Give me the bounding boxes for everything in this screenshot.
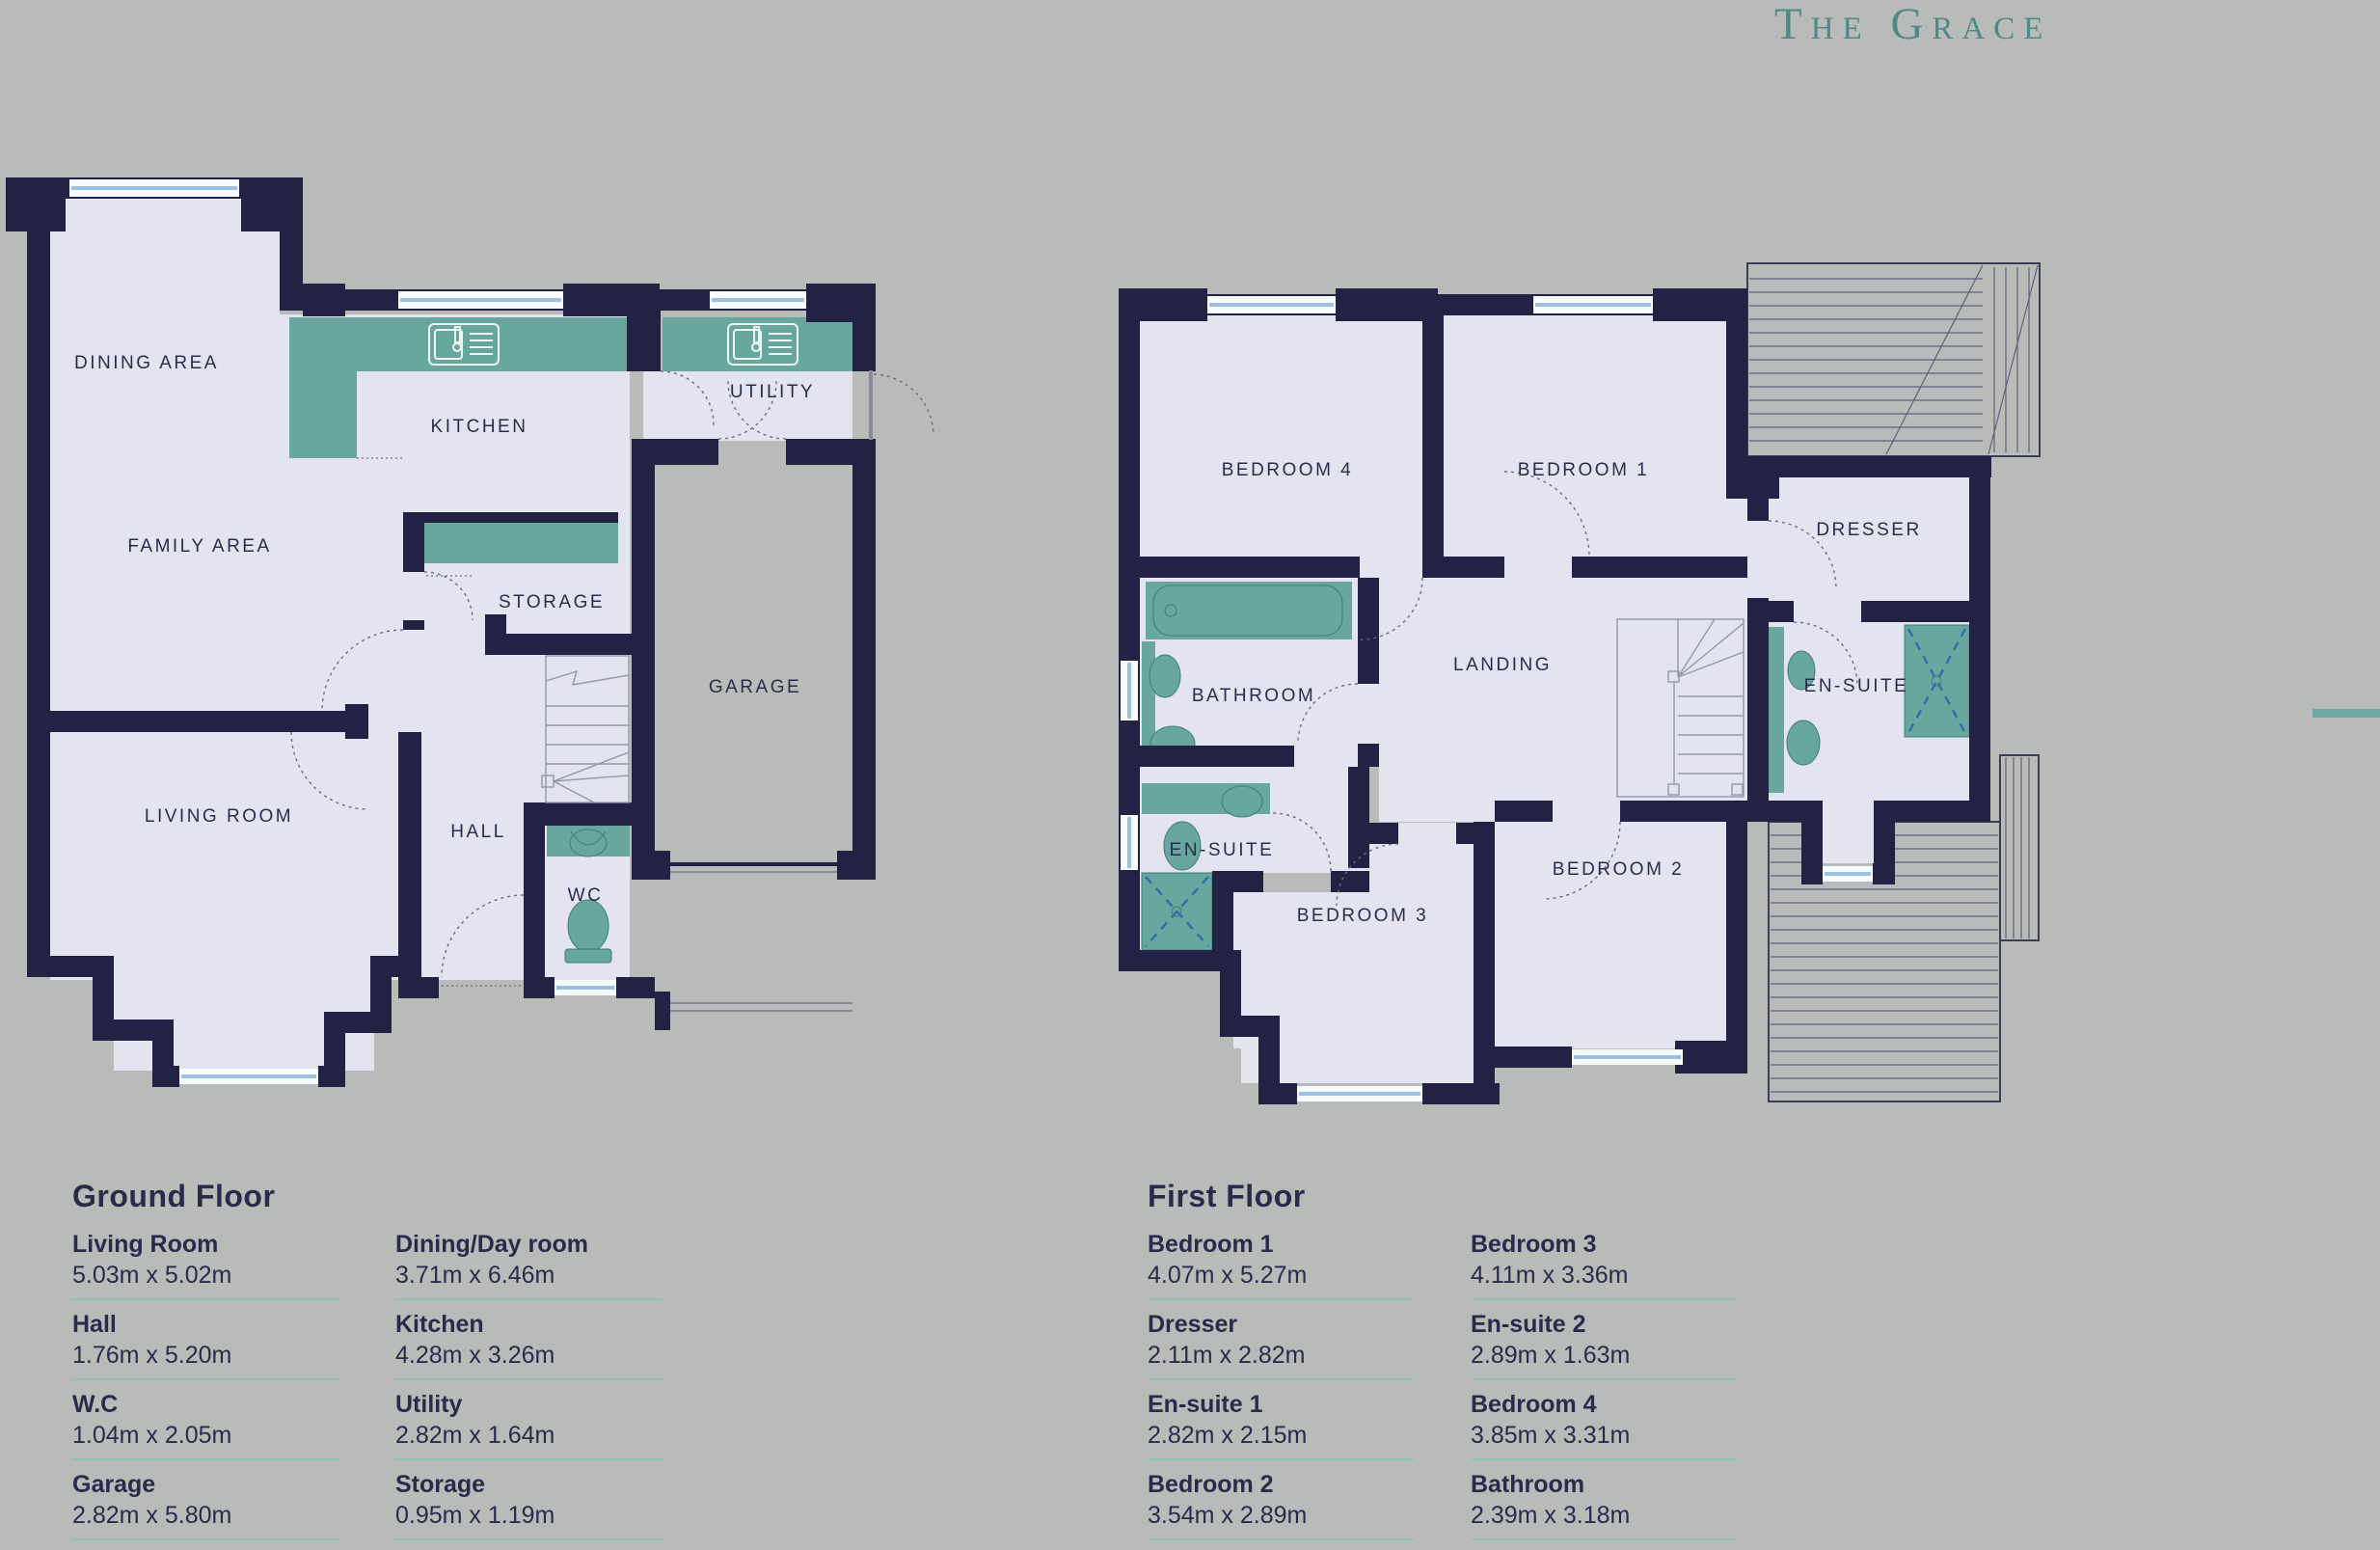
ground-floor-table: Ground Floor Living Room 5.03m x 5.02m H… (72, 1179, 767, 1550)
room-name: Utility (395, 1390, 663, 1419)
room-dims: 2.82m x 1.64m (395, 1421, 663, 1450)
room-dims: 1.04m x 2.05m (72, 1421, 339, 1450)
table-row: Storage 0.95m x 1.19m (395, 1470, 663, 1540)
first-table-col1: Bedroom 1 4.07m x 5.27m Dresser 2.11m x … (1148, 1230, 1415, 1550)
room-name: Kitchen (395, 1310, 663, 1339)
table-row: Bedroom 3 4.11m x 3.36m (1471, 1230, 1738, 1300)
table-row: Living Room 5.03m x 5.02m (72, 1230, 339, 1300)
label-bathroom: BATHROOM (1192, 686, 1315, 706)
room-dims: 2.82m x 5.80m (72, 1501, 339, 1530)
wc-basin-icon (570, 829, 607, 857)
first-table-col2: Bedroom 3 4.11m x 3.36m En-suite 2 2.89m… (1471, 1230, 1738, 1550)
page-edge-accent (2312, 709, 2380, 718)
label-bedroom-3: BEDROOM 3 (1297, 906, 1429, 926)
label-garage: GARAGE (709, 677, 801, 697)
label-kitchen: KITCHEN (431, 417, 528, 437)
room-name: Bathroom (1471, 1470, 1738, 1499)
room-dims: 2.11m x 2.82m (1148, 1341, 1415, 1370)
room-name: Bedroom 2 (1148, 1470, 1415, 1499)
room-name: Hall (72, 1310, 339, 1339)
room-name: Bedroom 3 (1471, 1230, 1738, 1259)
page-title: The Grace (1774, 0, 2051, 50)
room-dims: 3.54m x 2.89m (1148, 1501, 1415, 1530)
table-row: Garage 2.82m x 5.80m (72, 1470, 339, 1540)
room-dims: 1.76m x 5.20m (72, 1341, 339, 1370)
room-dims: 5.03m x 5.02m (72, 1261, 339, 1290)
room-name: Dresser (1148, 1310, 1415, 1339)
room-name: En-suite 2 (1471, 1310, 1738, 1339)
room-name: W.C (72, 1390, 339, 1419)
roof-hatch-top (1747, 263, 2040, 456)
table-row: En-suite 1 2.82m x 2.15m (1148, 1390, 1415, 1460)
table-row: Hall 1.76m x 5.20m (72, 1310, 339, 1380)
label-bedroom-2: BEDROOM 2 (1553, 859, 1685, 880)
first-floor-table: First Floor Bedroom 1 4.07m x 5.27m Dres… (1148, 1179, 1842, 1550)
table-row: Bedroom 2 3.54m x 2.89m (1148, 1470, 1415, 1540)
room-name: Bedroom 1 (1148, 1230, 1415, 1259)
table-row: W.C 1.04m x 2.05m (72, 1390, 339, 1460)
label-ensuite-left: EN-SUITE (1170, 840, 1275, 860)
room-name: Storage (395, 1470, 663, 1499)
table-row: Kitchen 4.28m x 3.26m (395, 1310, 663, 1380)
room-name: Living Room (72, 1230, 339, 1259)
label-utility: UTILITY (730, 382, 815, 402)
label-storage: STORAGE (499, 592, 605, 612)
room-dims: 2.39m x 3.18m (1471, 1501, 1738, 1530)
label-living-room: LIVING ROOM (145, 806, 293, 827)
ground-floor-plan: DINING AREA KITCHEN UTILITY FAMILY AREA … (0, 145, 964, 1109)
label-hall: HALL (450, 822, 506, 842)
room-name: En-suite 1 (1148, 1390, 1415, 1419)
table-row: Bedroom 4 3.85m x 3.31m (1471, 1390, 1738, 1460)
room-dims: 4.11m x 3.36m (1471, 1261, 1738, 1290)
label-dresser: DRESSER (1816, 520, 1921, 540)
room-dims: 2.89m x 1.63m (1471, 1341, 1738, 1370)
room-name: Dining/Day room (395, 1230, 663, 1259)
ground-table-col1: Living Room 5.03m x 5.02m Hall 1.76m x 5… (72, 1230, 339, 1550)
room-dims: 4.07m x 5.27m (1148, 1261, 1415, 1290)
room-dims: 2.82m x 2.15m (1148, 1421, 1415, 1450)
room-name: Garage (72, 1470, 339, 1499)
table-row: Bathroom 2.39m x 3.18m (1471, 1470, 1738, 1540)
label-landing: LANDING (1453, 655, 1552, 675)
label-bedroom-4: BEDROOM 4 (1222, 460, 1354, 480)
room-dims: 0.95m x 1.19m (395, 1501, 663, 1530)
label-bedroom-1: BEDROOM 1 (1518, 460, 1650, 480)
label-wc: WC (568, 885, 604, 906)
table-row: Utility 2.82m x 1.64m (395, 1390, 663, 1460)
table-row: Dresser 2.11m x 2.82m (1148, 1310, 1415, 1380)
room-dims: 4.28m x 3.26m (395, 1341, 663, 1370)
room-dims: 3.85m x 3.31m (1471, 1421, 1738, 1450)
room-name: Bedroom 4 (1471, 1390, 1738, 1419)
floorplan-sheet: { "title": "The Grace", "colors": { "bac… (0, 0, 2380, 1509)
label-family-area: FAMILY AREA (127, 536, 271, 557)
first-floor-heading: First Floor (1148, 1179, 1842, 1214)
table-row: Bedroom 1 4.07m x 5.27m (1148, 1230, 1415, 1300)
room-dims: 3.71m x 6.46m (395, 1261, 663, 1290)
label-ensuite-right: EN-SUITE (1804, 676, 1909, 696)
first-floor-plan: BEDROOM 4 BEDROOM 1 DRESSER BATHROOM LAN… (1090, 246, 2054, 1114)
table-row: En-suite 2 2.89m x 1.63m (1471, 1310, 1738, 1380)
ground-table-col2: Dining/Day room 3.71m x 6.46m Kitchen 4.… (395, 1230, 663, 1550)
table-row: Dining/Day room 3.71m x 6.46m (395, 1230, 663, 1300)
ground-floor-heading: Ground Floor (72, 1179, 767, 1214)
label-dining-area: DINING AREA (74, 353, 219, 373)
